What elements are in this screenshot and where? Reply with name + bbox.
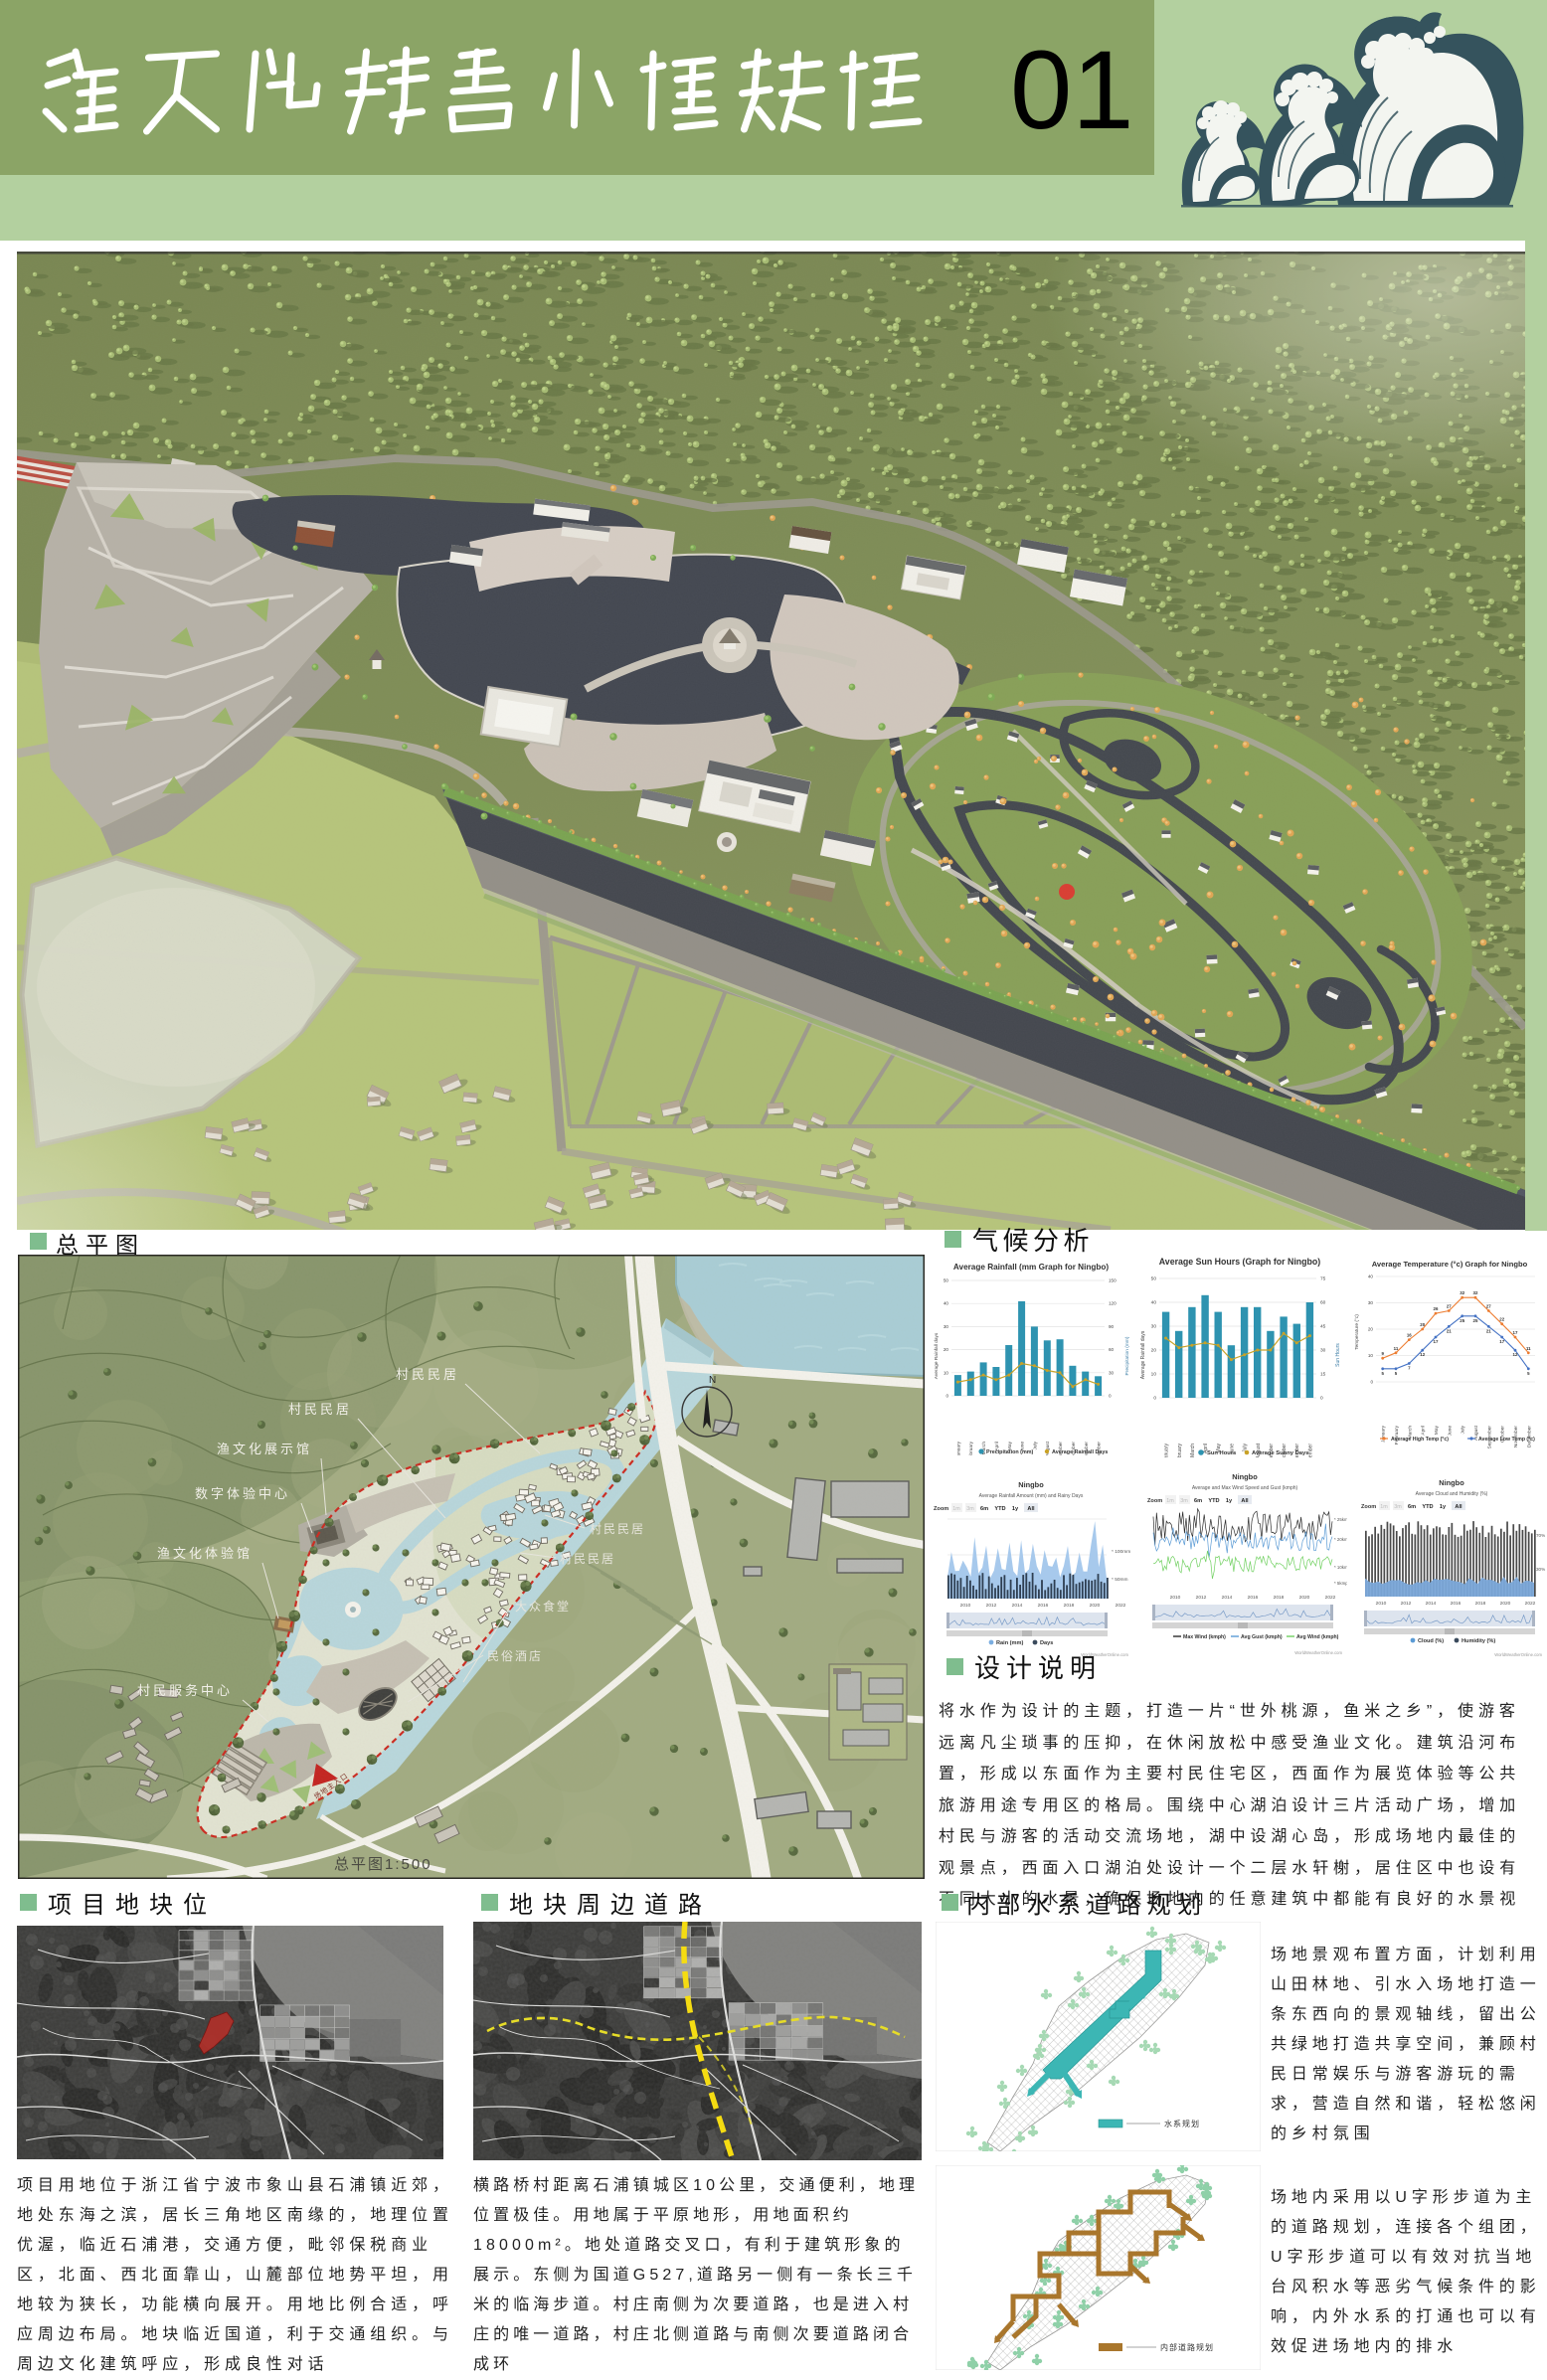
svg-text:70%: 70%	[1536, 1533, 1545, 1538]
svg-text:Average Rainfall Amount (mm) a: Average Rainfall Amount (mm) and Rainy D…	[979, 1493, 1084, 1499]
svg-text:11: 11	[1394, 1346, 1399, 1351]
svg-text:All: All	[1455, 1504, 1462, 1510]
svg-text:Ningbo: Ningbo	[1018, 1480, 1044, 1489]
svg-text:2016: 2016	[1248, 1595, 1259, 1601]
svg-text:Zoom: Zoom	[1361, 1504, 1376, 1510]
svg-text:0: 0	[1370, 1380, 1373, 1385]
svg-text:Sun Hours: Sun Hours	[1335, 1343, 1341, 1367]
svg-text:Rain (mm): Rain (mm)	[996, 1640, 1023, 1646]
svg-text:2020: 2020	[1090, 1603, 1101, 1609]
svg-text:* 100mm: * 100mm	[1112, 1549, 1130, 1555]
svg-text:27: 27	[1447, 1304, 1452, 1309]
svg-text:30%: 30%	[1536, 1567, 1545, 1572]
svg-text:WorldWeatherOnline.com: WorldWeatherOnline.com	[1294, 1650, 1342, 1655]
svg-text:2010: 2010	[1170, 1595, 1181, 1601]
svg-text:July: July	[1461, 1425, 1466, 1434]
svg-text:12: 12	[1420, 1352, 1425, 1357]
svg-text:2016: 2016	[1451, 1601, 1461, 1607]
svg-text:* 20kmph: * 20kmph	[1334, 1537, 1347, 1542]
svg-text:22: 22	[1499, 1317, 1504, 1322]
svg-text:Ningbo: Ningbo	[1232, 1472, 1258, 1481]
svg-text:Average Temperature (°c) Graph: Average Temperature (°c) Graph for Ningb…	[1372, 1260, 1528, 1269]
svg-text:Ningbo: Ningbo	[1439, 1478, 1464, 1487]
svg-text:* 50mm: * 50mm	[1112, 1577, 1128, 1583]
svg-text:Average High Temp (°c): Average High Temp (°c)	[1391, 1437, 1449, 1443]
svg-text:总平图1:500: 总平图1:500	[334, 1856, 432, 1873]
svg-text:25: 25	[1473, 1318, 1478, 1323]
svg-text:Average Rainfall Days: Average Rainfall Days	[1052, 1449, 1108, 1455]
svg-text:1y: 1y	[1440, 1504, 1447, 1510]
svg-text:20: 20	[944, 1347, 949, 1352]
svg-text:27: 27	[1486, 1304, 1491, 1309]
svg-text:45: 45	[1320, 1324, 1326, 1330]
svg-text:30: 30	[1368, 1300, 1374, 1305]
svg-text:Average Rainfall days: Average Rainfall days	[1140, 1330, 1146, 1379]
svg-text:3m: 3m	[966, 1506, 974, 1512]
svg-text:Zoom: Zoom	[1147, 1498, 1162, 1504]
svg-text:May: May	[1434, 1425, 1440, 1435]
svg-text:Temperature (°c): Temperature (°c)	[1354, 1314, 1360, 1350]
svg-text:2010: 2010	[960, 1603, 971, 1609]
svg-text:30: 30	[1109, 1370, 1115, 1375]
svg-text:内部道路规划: 内部道路规划	[1160, 2342, 1214, 2352]
svg-text:10: 10	[944, 1370, 949, 1375]
svg-text:Average Sunny Days: Average Sunny Days	[1252, 1450, 1308, 1456]
svg-text:11: 11	[1526, 1346, 1531, 1351]
svg-text:40: 40	[1368, 1275, 1374, 1279]
svg-text:60: 60	[1109, 1347, 1115, 1352]
svg-text:6m: 6m	[1408, 1504, 1416, 1510]
svg-text:2022: 2022	[1325, 1595, 1336, 1601]
svg-text:10: 10	[1151, 1372, 1157, 1378]
svg-text:20: 20	[1420, 1322, 1425, 1327]
svg-text:Precipitation (mm): Precipitation (mm)	[1124, 1336, 1130, 1375]
svg-text:50: 50	[944, 1278, 949, 1283]
svg-text:10: 10	[1368, 1353, 1374, 1358]
svg-text:50: 50	[1151, 1276, 1157, 1282]
svg-text:Sun Hours: Sun Hours	[1207, 1450, 1236, 1456]
svg-text:3m: 3m	[1180, 1498, 1188, 1504]
svg-text:2012: 2012	[1401, 1601, 1412, 1607]
svg-text:2018: 2018	[1475, 1601, 1486, 1607]
svg-text:Average and Max Wind Speed and: Average and Max Wind Speed and Gust (kmp…	[1192, 1485, 1298, 1491]
svg-text:Days: Days	[1040, 1640, 1053, 1646]
svg-text:0: 0	[1320, 1396, 1323, 1402]
svg-text:40: 40	[944, 1301, 949, 1306]
svg-text:60: 60	[1320, 1300, 1326, 1306]
svg-text:17: 17	[1434, 1339, 1439, 1344]
svg-text:0: 0	[945, 1394, 948, 1399]
svg-text:Average Rainfall (mm Graph for: Average Rainfall (mm Graph for Ningbo)	[953, 1263, 1109, 1272]
svg-text:2022: 2022	[1525, 1601, 1536, 1607]
svg-text:YTD: YTD	[1208, 1498, 1219, 1504]
svg-text:水系规划: 水系规划	[1164, 2119, 1200, 2128]
svg-text:Average Sun Hours (Graph for N: Average Sun Hours (Graph for Ningbo)	[1159, 1257, 1320, 1267]
svg-text:21: 21	[1486, 1328, 1491, 1333]
svg-text:Avg Gust (kmph): Avg Gust (kmph)	[1241, 1634, 1283, 1640]
svg-text:March: March	[1190, 1444, 1196, 1457]
svg-text:0: 0	[1109, 1394, 1112, 1399]
svg-text:1y: 1y	[1012, 1506, 1019, 1512]
svg-text:* 5kmph: * 5kmph	[1334, 1581, 1347, 1586]
svg-text:1y: 1y	[1226, 1498, 1233, 1504]
svg-text:120: 120	[1109, 1301, 1117, 1306]
svg-text:2014: 2014	[1426, 1601, 1437, 1607]
svg-text:6m: 6m	[980, 1506, 988, 1512]
svg-text:All: All	[1241, 1498, 1249, 1504]
svg-text:17: 17	[1499, 1339, 1504, 1344]
svg-text:February: February	[968, 1441, 974, 1455]
svg-text:2014: 2014	[1222, 1595, 1233, 1601]
svg-text:20: 20	[1151, 1348, 1157, 1354]
svg-text:2012: 2012	[1196, 1595, 1207, 1601]
svg-text:June: June	[1447, 1426, 1453, 1437]
svg-text:January: January	[1164, 1444, 1170, 1457]
svg-text:2016: 2016	[1038, 1603, 1049, 1609]
svg-text:0: 0	[1153, 1396, 1156, 1402]
svg-text:2020: 2020	[1299, 1595, 1310, 1601]
svg-text:YTD: YTD	[1422, 1504, 1433, 1510]
svg-text:1m: 1m	[952, 1506, 960, 1512]
svg-text:2020: 2020	[1500, 1601, 1511, 1607]
svg-text:1m: 1m	[1380, 1504, 1388, 1510]
svg-text:Cloud (%): Cloud (%)	[1418, 1638, 1444, 1644]
svg-text:32: 32	[1473, 1290, 1478, 1295]
svg-text:2014: 2014	[1012, 1603, 1023, 1609]
svg-text:Average Low Temp (°c): Average Low Temp (°c)	[1478, 1437, 1535, 1443]
svg-text:15: 15	[1320, 1372, 1326, 1378]
svg-text:YTD: YTD	[994, 1506, 1005, 1512]
svg-text:2018: 2018	[1274, 1595, 1285, 1601]
svg-text:3m: 3m	[1394, 1504, 1402, 1510]
svg-text:40: 40	[1151, 1300, 1157, 1306]
svg-text:90: 90	[1109, 1324, 1115, 1329]
svg-text:All: All	[1027, 1506, 1035, 1512]
svg-text:16: 16	[1407, 1333, 1412, 1338]
svg-text:2010: 2010	[1376, 1601, 1387, 1607]
svg-text:6m: 6m	[1194, 1498, 1202, 1504]
svg-text:Zoom: Zoom	[934, 1506, 948, 1512]
svg-text:75: 75	[1320, 1276, 1326, 1282]
svg-text:Average Cloud and Humidity (%): Average Cloud and Humidity (%)	[1416, 1491, 1488, 1497]
svg-text:30: 30	[1320, 1348, 1326, 1354]
svg-text:2018: 2018	[1064, 1603, 1075, 1609]
svg-text:Average Rainfall days: Average Rainfall days	[934, 1332, 940, 1379]
svg-text:30: 30	[944, 1324, 949, 1329]
svg-text:* 25kmph: * 25kmph	[1334, 1517, 1347, 1522]
svg-text:April: April	[1421, 1426, 1427, 1436]
svg-text:* 10kmph: * 10kmph	[1334, 1565, 1347, 1570]
svg-text:Max Wind (kmph): Max Wind (kmph)	[1183, 1634, 1226, 1640]
svg-text:32: 32	[1460, 1290, 1464, 1295]
svg-text:2022: 2022	[1116, 1603, 1126, 1609]
svg-text:1m: 1m	[1166, 1498, 1174, 1504]
svg-text:150: 150	[1109, 1278, 1117, 1283]
svg-text:20: 20	[1368, 1327, 1374, 1332]
svg-text:21: 21	[1447, 1328, 1452, 1333]
svg-text:January: January	[955, 1441, 961, 1455]
svg-text:12: 12	[1513, 1352, 1518, 1357]
svg-text:26: 26	[1434, 1306, 1439, 1311]
svg-text:Precipitation (mm): Precipitation (mm)	[986, 1449, 1034, 1455]
svg-text:2012: 2012	[986, 1603, 997, 1609]
svg-text:30: 30	[1151, 1324, 1157, 1330]
svg-text:February: February	[1177, 1444, 1183, 1457]
svg-text:25: 25	[1460, 1318, 1464, 1323]
svg-text:WorldWeatherOnline.com: WorldWeatherOnline.com	[1494, 1652, 1542, 1657]
svg-text:Avg Wind (kmph): Avg Wind (kmph)	[1296, 1634, 1339, 1640]
svg-text:Humidity (%): Humidity (%)	[1461, 1638, 1495, 1644]
svg-text:17: 17	[1513, 1330, 1518, 1335]
